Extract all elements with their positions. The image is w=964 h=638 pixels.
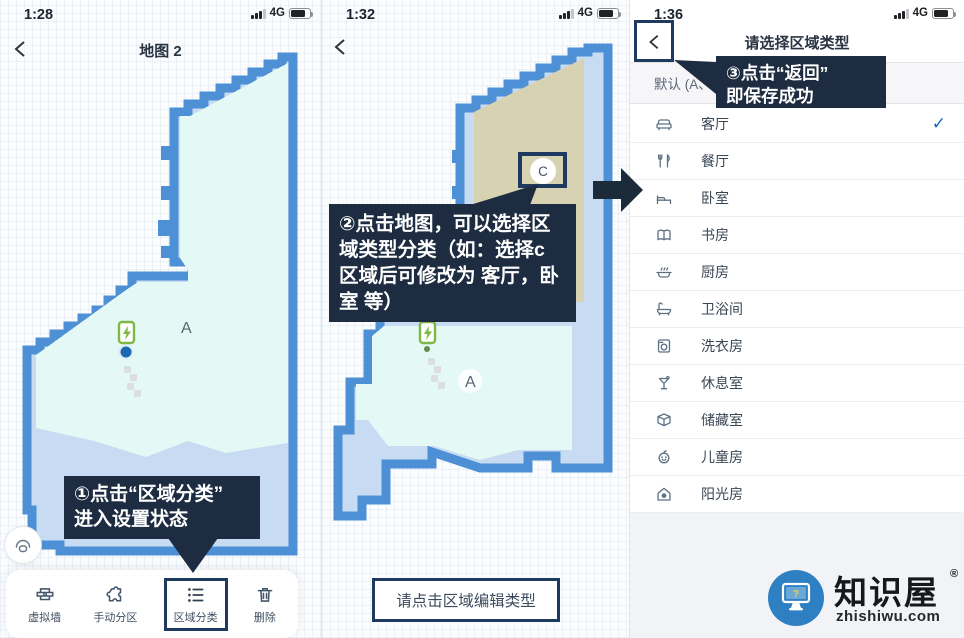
map-toolbar: 虚拟墙 手动分区 区域分类 删除 xyxy=(6,570,298,638)
check-icon: ✓ xyxy=(932,114,946,134)
room-label: 卫浴间 xyxy=(701,299,946,319)
storage-box-icon xyxy=(655,411,677,429)
step2-callout-tail xyxy=(462,178,544,206)
room-row-sunroom[interactable]: 阳光房 xyxy=(630,476,964,513)
svg-text:?: ? xyxy=(793,589,799,600)
room-label: 厨房 xyxy=(701,262,946,282)
brand-site: zhishiwu.com xyxy=(836,608,940,625)
cocktail-icon xyxy=(655,374,677,392)
charging-dock-icon xyxy=(119,322,134,343)
washing-machine-icon xyxy=(655,337,677,355)
remote-control-button[interactable] xyxy=(4,526,42,564)
step1-callout-tail xyxy=(160,537,230,575)
phone-screen-map-edit: 1:32 4G xyxy=(322,0,630,638)
room-row-laundry[interactable]: 洗衣房 xyxy=(630,328,964,365)
back-button[interactable] xyxy=(645,32,667,54)
region-a-label: A xyxy=(181,320,192,337)
phone-screen-room-type: 1:36 4G 请选择区域类型 默认 (A、B ③点击“返回” 即保存成功 xyxy=(630,0,964,638)
room-row-kitchen[interactable]: 厨房 xyxy=(630,254,964,291)
bed-icon xyxy=(655,189,677,207)
status-bar: 1:36 4G xyxy=(630,4,964,26)
robot-icon xyxy=(120,346,133,359)
step2-callout: ②点击地图，可以选择区 域类型分类（如：选择c 区域后可修改为 客厅，卧 室 等… xyxy=(329,204,576,322)
baby-icon xyxy=(655,448,677,466)
book-icon xyxy=(655,226,677,244)
room-label: 休息室 xyxy=(701,373,946,393)
page-title: 请选择区域类型 xyxy=(630,32,964,53)
puzzle-icon xyxy=(104,584,126,606)
room-label: 阳光房 xyxy=(701,484,946,504)
phone-screen-map: 1:28 4G 地图 2 xyxy=(0,0,322,638)
room-label: 客厅 xyxy=(701,114,932,134)
room-label: 洗衣房 xyxy=(701,336,946,356)
monitor-logo-icon: ? xyxy=(768,570,824,626)
step3-callout-tail xyxy=(670,52,720,98)
charging-dock-icon xyxy=(420,322,435,343)
virtual-wall-icon xyxy=(34,584,56,606)
room-row-study[interactable]: 书房 xyxy=(630,217,964,254)
category-list-icon xyxy=(185,584,207,606)
room-row-kids[interactable]: 儿童房 xyxy=(630,439,964,476)
virtual-wall-button[interactable]: 虚拟墙 xyxy=(22,580,67,629)
signal-icon xyxy=(894,8,909,19)
room-row-living[interactable]: 客厅 ✓ xyxy=(630,106,964,143)
watermark: ? 知识屋 ® zhishiwu.com xyxy=(762,566,962,632)
manual-partition-button[interactable]: 手动分区 xyxy=(87,580,143,629)
step3-callout: ③点击“返回” 即保存成功 xyxy=(716,56,886,108)
room-row-bedroom[interactable]: 卧室 xyxy=(630,180,964,217)
back-button-highlight-box xyxy=(634,20,674,62)
room-label: 储藏室 xyxy=(701,410,946,430)
room-row-storage[interactable]: 储藏室 xyxy=(630,402,964,439)
sun-house-icon xyxy=(655,485,677,503)
delete-button[interactable]: 删除 xyxy=(248,580,282,629)
pot-icon xyxy=(655,263,677,281)
cutlery-icon xyxy=(655,152,677,170)
room-label: 书房 xyxy=(701,225,946,245)
battery-icon xyxy=(932,8,954,19)
room-row-bathroom[interactable]: 卫浴间 xyxy=(630,291,964,328)
room-row-lounge[interactable]: 休息室 xyxy=(630,365,964,402)
tutorial-collage: 1:28 4G 地图 2 xyxy=(0,0,964,638)
room-label: 餐厅 xyxy=(701,151,946,171)
transition-arrow-icon xyxy=(591,166,645,214)
room-row-dining[interactable]: 餐厅 xyxy=(630,143,964,180)
registered-mark: ® xyxy=(950,568,958,580)
map-hint-box: 请点击区域编辑类型 xyxy=(372,578,560,622)
region-a-label: A xyxy=(465,374,476,391)
robot-dot xyxy=(424,346,430,352)
bathtub-icon xyxy=(655,300,677,318)
sofa-icon xyxy=(655,115,677,133)
room-label: 儿童房 xyxy=(701,447,946,467)
trash-icon xyxy=(254,584,276,606)
room-label: 卧室 xyxy=(701,188,946,208)
area-category-button[interactable]: 区域分类 xyxy=(164,578,228,631)
brand-name: 知识屋 xyxy=(834,566,939,614)
network-type: 4G xyxy=(913,7,928,19)
room-type-list: 客厅 ✓ 餐厅 卧室 书房 xyxy=(630,106,964,513)
step1-callout: ①点击“区域分类” 进入设置状态 xyxy=(64,476,260,539)
